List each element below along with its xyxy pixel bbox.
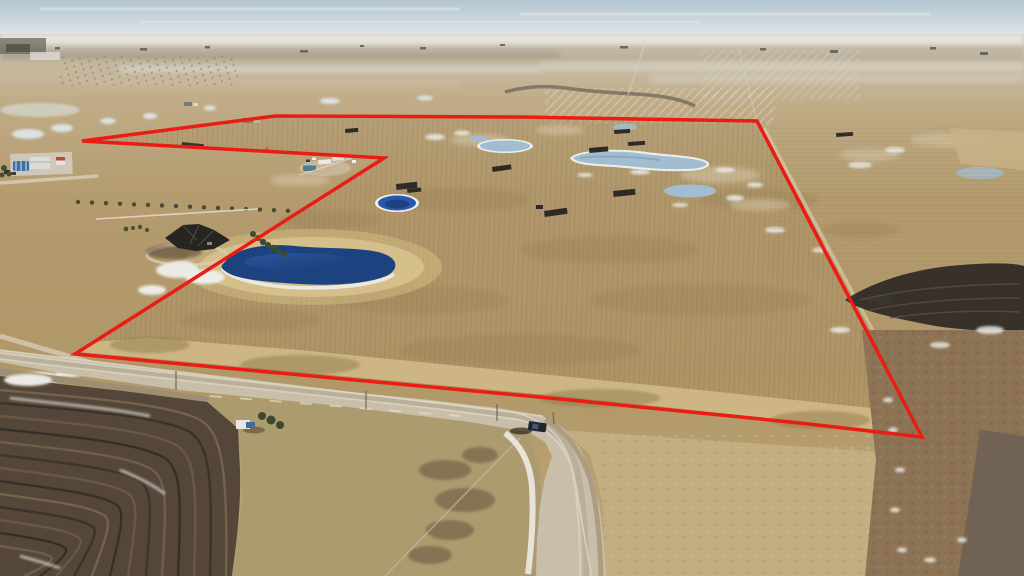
aerial-photo <box>0 0 1024 576</box>
plowed-field <box>0 368 240 576</box>
pond-royal <box>375 194 419 212</box>
blue-tarp <box>246 422 255 428</box>
dotted-swath-field <box>60 56 238 86</box>
pond-pale-4 <box>664 185 716 198</box>
south-pasture <box>205 400 545 576</box>
aerial-photo-stage <box>0 0 1024 576</box>
pond-pale-1 <box>477 139 533 153</box>
white-trailer-1 <box>318 159 331 164</box>
dark-vehicle-speck <box>306 160 310 163</box>
pond-pale-2 <box>469 136 487 143</box>
white-shed <box>30 157 50 169</box>
